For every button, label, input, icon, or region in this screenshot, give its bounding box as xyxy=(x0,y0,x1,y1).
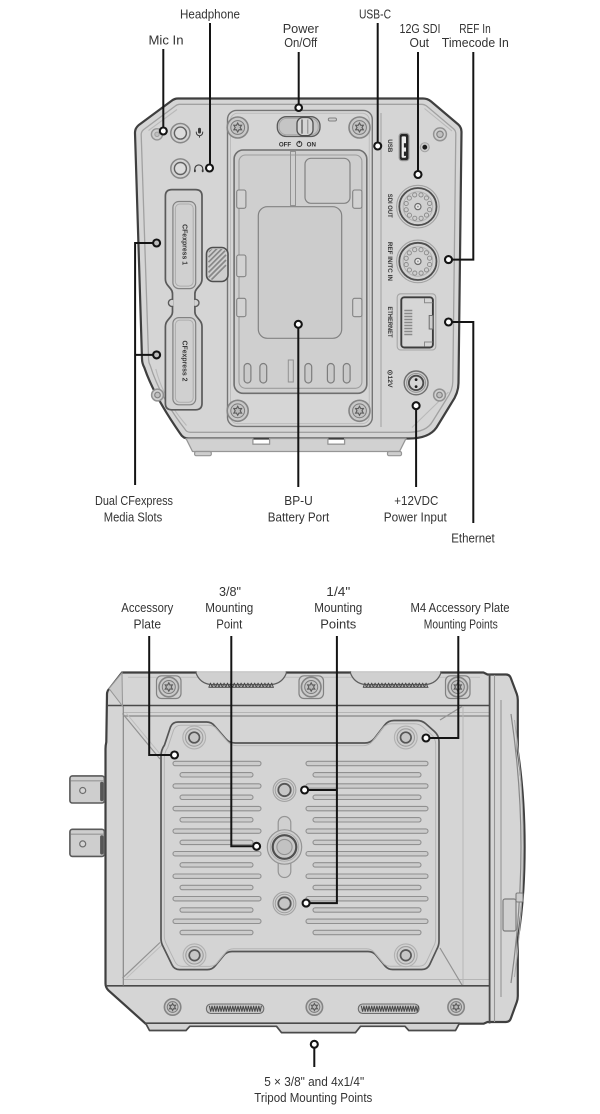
svg-text:SDI OUT: SDI OUT xyxy=(386,194,393,219)
svg-text:Mic In: Mic In xyxy=(149,33,184,48)
svg-text:M4 Accessory Plate: M4 Accessory Plate xyxy=(411,600,510,615)
svg-text:Point: Point xyxy=(216,617,242,632)
svg-text:Ethernet: Ethernet xyxy=(451,531,495,546)
svg-text:REF IN/TC IN: REF IN/TC IN xyxy=(386,242,393,281)
svg-text:Battery Port: Battery Port xyxy=(268,510,330,525)
svg-text:Accessory: Accessory xyxy=(121,600,173,615)
svg-text:Tripod Mounting Points: Tripod Mounting Points xyxy=(254,1090,372,1105)
svg-text:REF In: REF In xyxy=(459,21,491,36)
svg-text:12G SDI: 12G SDI xyxy=(400,21,441,36)
svg-text:ON: ON xyxy=(307,142,317,149)
svg-text:ETHERNET: ETHERNET xyxy=(386,307,393,339)
svg-text:Mounting: Mounting xyxy=(205,600,253,615)
svg-text:USB: USB xyxy=(386,139,393,152)
svg-text:BP-U: BP-U xyxy=(284,493,313,508)
svg-text:12V: 12V xyxy=(386,376,393,388)
svg-text:Mounting Points: Mounting Points xyxy=(424,617,498,632)
svg-text:Power Input: Power Input xyxy=(384,510,447,525)
svg-text:Headphone: Headphone xyxy=(180,7,240,22)
svg-text:OFF: OFF xyxy=(279,142,292,149)
svg-text:CFexpress 1: CFexpress 1 xyxy=(180,224,189,265)
svg-text:USB-C: USB-C xyxy=(359,7,391,22)
svg-text:On/Off: On/Off xyxy=(284,35,317,50)
svg-text:Mounting: Mounting xyxy=(314,600,362,615)
svg-text:1/4": 1/4" xyxy=(326,584,350,599)
svg-text:5 × 3/8" and 4x1/4": 5 × 3/8" and 4x1/4" xyxy=(264,1074,364,1089)
svg-text:Plate: Plate xyxy=(134,617,162,632)
svg-text:Points: Points xyxy=(320,617,356,632)
svg-text:Out: Out xyxy=(410,35,430,50)
svg-text:Dual CFexpress: Dual CFexpress xyxy=(95,493,173,508)
svg-text:CFexpress 2: CFexpress 2 xyxy=(180,341,189,382)
svg-text:Media Slots: Media Slots xyxy=(104,510,163,525)
svg-text:Power: Power xyxy=(283,21,320,36)
svg-text:+12VDC: +12VDC xyxy=(394,493,438,508)
svg-text:Timecode In: Timecode In xyxy=(442,35,509,50)
svg-text:3/8": 3/8" xyxy=(219,584,241,599)
